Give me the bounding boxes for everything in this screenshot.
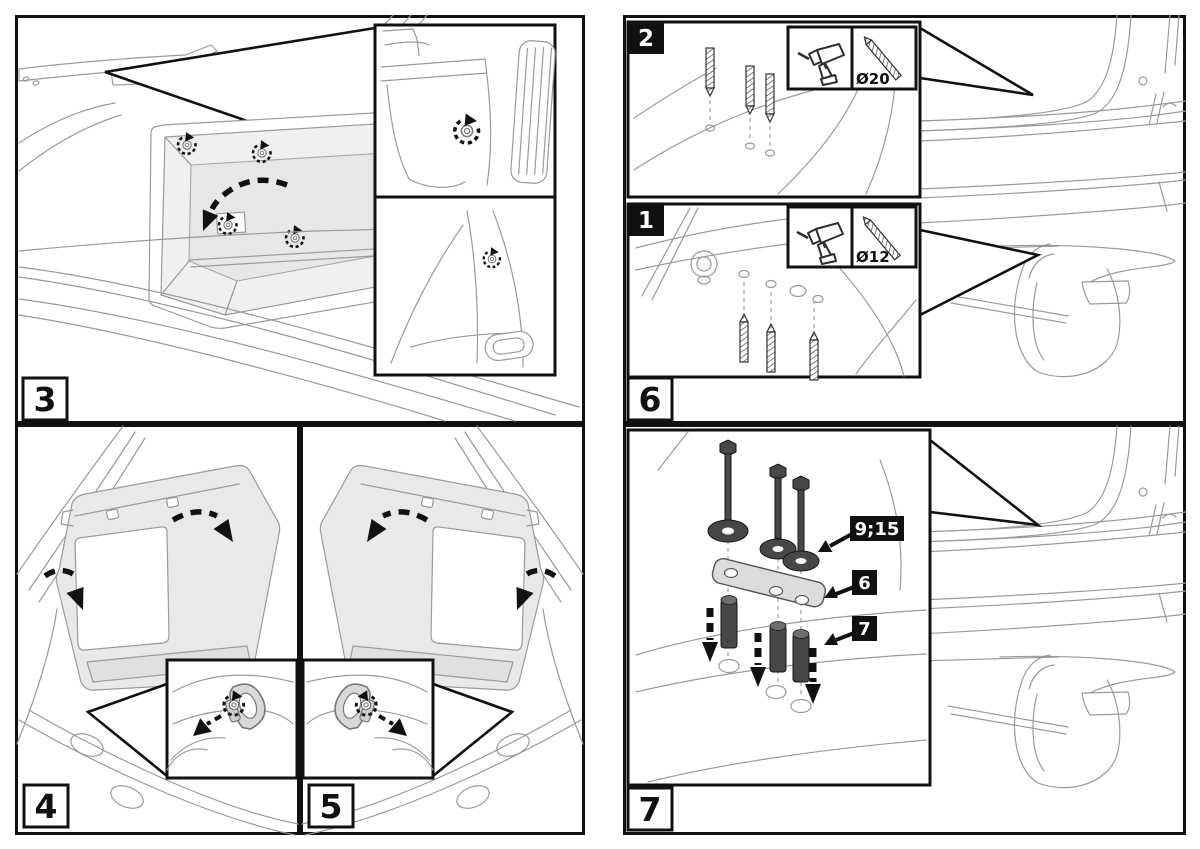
spacer-tube [721, 596, 737, 649]
panel-step-4: 4 [17, 426, 299, 836]
svg-text:9;15: 9;15 [855, 519, 900, 540]
step-number-label: 5 [309, 785, 353, 827]
step-number-label: 7 [628, 788, 672, 830]
drill-bit-icon [810, 332, 818, 380]
svg-text:3: 3 [34, 380, 57, 419]
panel-step-7: 9;15 6 7 7 [625, 426, 1187, 834]
drill-bit-icon [746, 66, 754, 114]
sub-panel-step-2: Ø20 2 [628, 22, 920, 197]
step-number-label: 4 [24, 785, 68, 827]
detail-inset [375, 25, 556, 375]
svg-text:6: 6 [639, 380, 662, 419]
step-number-label: 3 [23, 378, 67, 420]
washer [783, 551, 819, 571]
washer [708, 520, 748, 542]
svg-text:4: 4 [35, 787, 58, 826]
spacer-tube [770, 622, 786, 673]
svg-text:5: 5 [320, 787, 343, 826]
spacer-tube [793, 630, 809, 683]
instruction-sheet: 3 Ø [0, 0, 1200, 849]
drill-diameter-label: Ø20 [856, 70, 890, 88]
drill-bit-icon [706, 48, 714, 96]
svg-text:1: 1 [638, 208, 654, 234]
hardware-inset: 9;15 6 7 [628, 430, 930, 785]
panel-step-5: 5 [302, 426, 584, 836]
sub-panel-step-1: Ø12 1 [628, 204, 920, 380]
svg-text:6: 6 [858, 573, 871, 594]
step-number-label: 6 [628, 378, 672, 420]
diagram-canvas: 3 Ø [0, 0, 1200, 849]
svg-text:7: 7 [639, 790, 662, 829]
svg-text:2: 2 [638, 26, 654, 52]
drill-bit-icon [766, 74, 774, 122]
drill-diameter-label: Ø12 [856, 248, 890, 266]
drill-bit-icon [767, 324, 775, 372]
svg-text:7: 7 [858, 619, 871, 640]
panel-step-3: 3 [17, 15, 584, 423]
panel-step-6: Ø20 2 [625, 15, 1187, 423]
drill-bit-icon [740, 314, 748, 362]
